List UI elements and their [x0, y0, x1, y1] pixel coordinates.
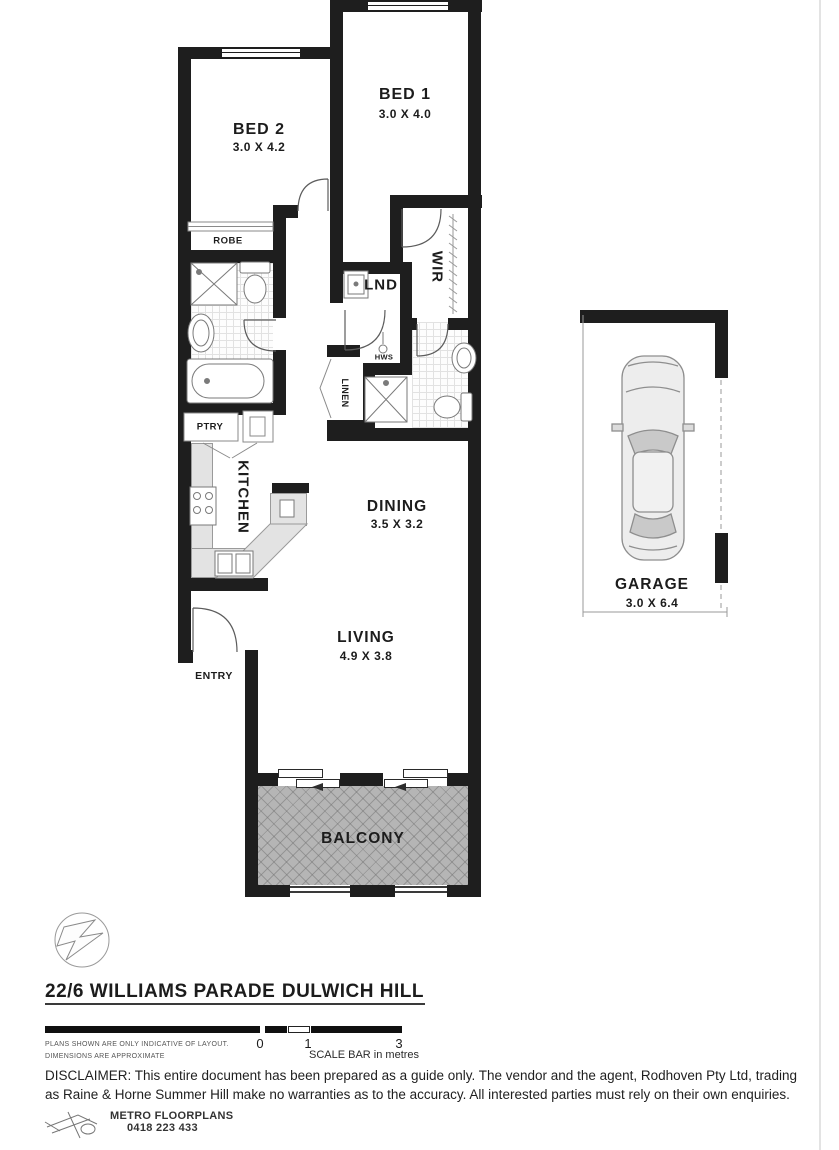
wall [178, 650, 193, 663]
sliding-door-panel [296, 779, 340, 788]
room-label-kitchen: KITCHEN [235, 460, 252, 534]
wall [447, 773, 468, 786]
wall [340, 773, 383, 786]
plan-note-1: PLANS SHOWN ARE ONLY INDICATIVE OF LAYOU… [45, 1041, 229, 1048]
room-label-entry: ENTRY [195, 670, 233, 682]
wall [245, 773, 278, 786]
room-label-living: LIVING [337, 629, 395, 647]
wall [350, 885, 395, 897]
scale-bar-segment [45, 1026, 260, 1033]
garage-boundary [583, 315, 727, 617]
maker-phone: 0418 223 433 [127, 1122, 198, 1134]
balcony-balustrade [395, 886, 447, 893]
room-dims-garage: 3.0 X 6.4 [626, 596, 679, 610]
room-label-dining: DINING [367, 498, 427, 516]
sliding-door-panel [403, 769, 448, 778]
room-label-bed1: BED 1 [379, 86, 431, 104]
kitchen-counter-bottom [191, 548, 253, 578]
room-label-lnd: LND [364, 277, 398, 294]
room-dims-bed2: 3.0 X 4.2 [233, 140, 286, 154]
wall [330, 0, 343, 208]
room-label-linen: LINEN [340, 379, 350, 408]
wall [715, 310, 728, 378]
scale-label-0: 0 [256, 1036, 263, 1051]
balcony-balustrade [290, 886, 350, 893]
wall [363, 373, 375, 432]
room-label-ptry: PTRY [197, 422, 224, 433]
linen-bifold-door [320, 359, 331, 418]
wall [447, 885, 481, 897]
room-dims-living: 4.9 X 3.8 [340, 649, 393, 663]
wall [178, 250, 286, 263]
room-label-garage: GARAGE [615, 576, 689, 594]
wall [245, 885, 290, 897]
wall [580, 310, 728, 323]
wall [178, 403, 286, 415]
room-label-bed2: BED 2 [233, 121, 285, 139]
wall [178, 578, 268, 591]
scale-caption: SCALE BAR in metres [309, 1049, 419, 1061]
ensuite-floor-tiles [412, 322, 468, 428]
kitchen-peninsula [270, 493, 307, 526]
room-dims-dining: 3.5 X 3.2 [371, 517, 424, 531]
plan-note-2: DIMENSIONS ARE APPROXIMATE [45, 1053, 165, 1060]
wall [327, 428, 481, 441]
wall [448, 318, 468, 330]
wall [327, 345, 360, 357]
wall [273, 205, 286, 318]
room-label-balcony: BALCONY [321, 830, 405, 848]
metro-logo-icon [55, 913, 109, 967]
wall [390, 208, 403, 262]
window [222, 47, 300, 59]
page-edge-line [819, 0, 821, 1150]
wall [403, 318, 417, 330]
address-suburb: DULWICH HILL [282, 981, 424, 1003]
wall [468, 0, 481, 897]
scale-bar-segment [311, 1026, 402, 1033]
hot-water-unit [379, 332, 387, 353]
room-label-robe: ROBE [213, 236, 242, 247]
floorplan-page: BED 1 3.0 X 4.0 BED 2 3.0 X 4.2 ROBE WIR… [0, 0, 839, 1150]
wall [330, 205, 343, 303]
room-label-hws: HWS [375, 353, 393, 362]
wall [715, 533, 728, 583]
maker-company: METRO FLOORPLANS [110, 1110, 233, 1122]
wall [272, 483, 309, 493]
robe-doors [188, 222, 273, 231]
wall [390, 195, 482, 208]
sliding-door-panel [384, 779, 428, 788]
room-dims-bed1: 3.0 X 4.0 [379, 107, 432, 121]
metro-floorplans-icon [45, 1112, 97, 1138]
address-divider [45, 1003, 425, 1005]
car [612, 356, 694, 560]
scale-bar-segment [265, 1026, 287, 1033]
sliding-door-panel [278, 769, 323, 778]
disclaimer-text: DISCLAIMER: This entire document has bee… [45, 1066, 800, 1104]
scale-bar-segment [288, 1026, 310, 1033]
wall [178, 47, 191, 650]
window [368, 0, 448, 12]
wir-hanging-rail [449, 214, 457, 314]
bathroom-floor-tiles [191, 263, 273, 390]
address-street: 22/6 WILLIAMS PARADE [45, 981, 275, 1003]
plan-fixtures [0, 0, 839, 1150]
room-label-wir: WIR [429, 251, 446, 283]
